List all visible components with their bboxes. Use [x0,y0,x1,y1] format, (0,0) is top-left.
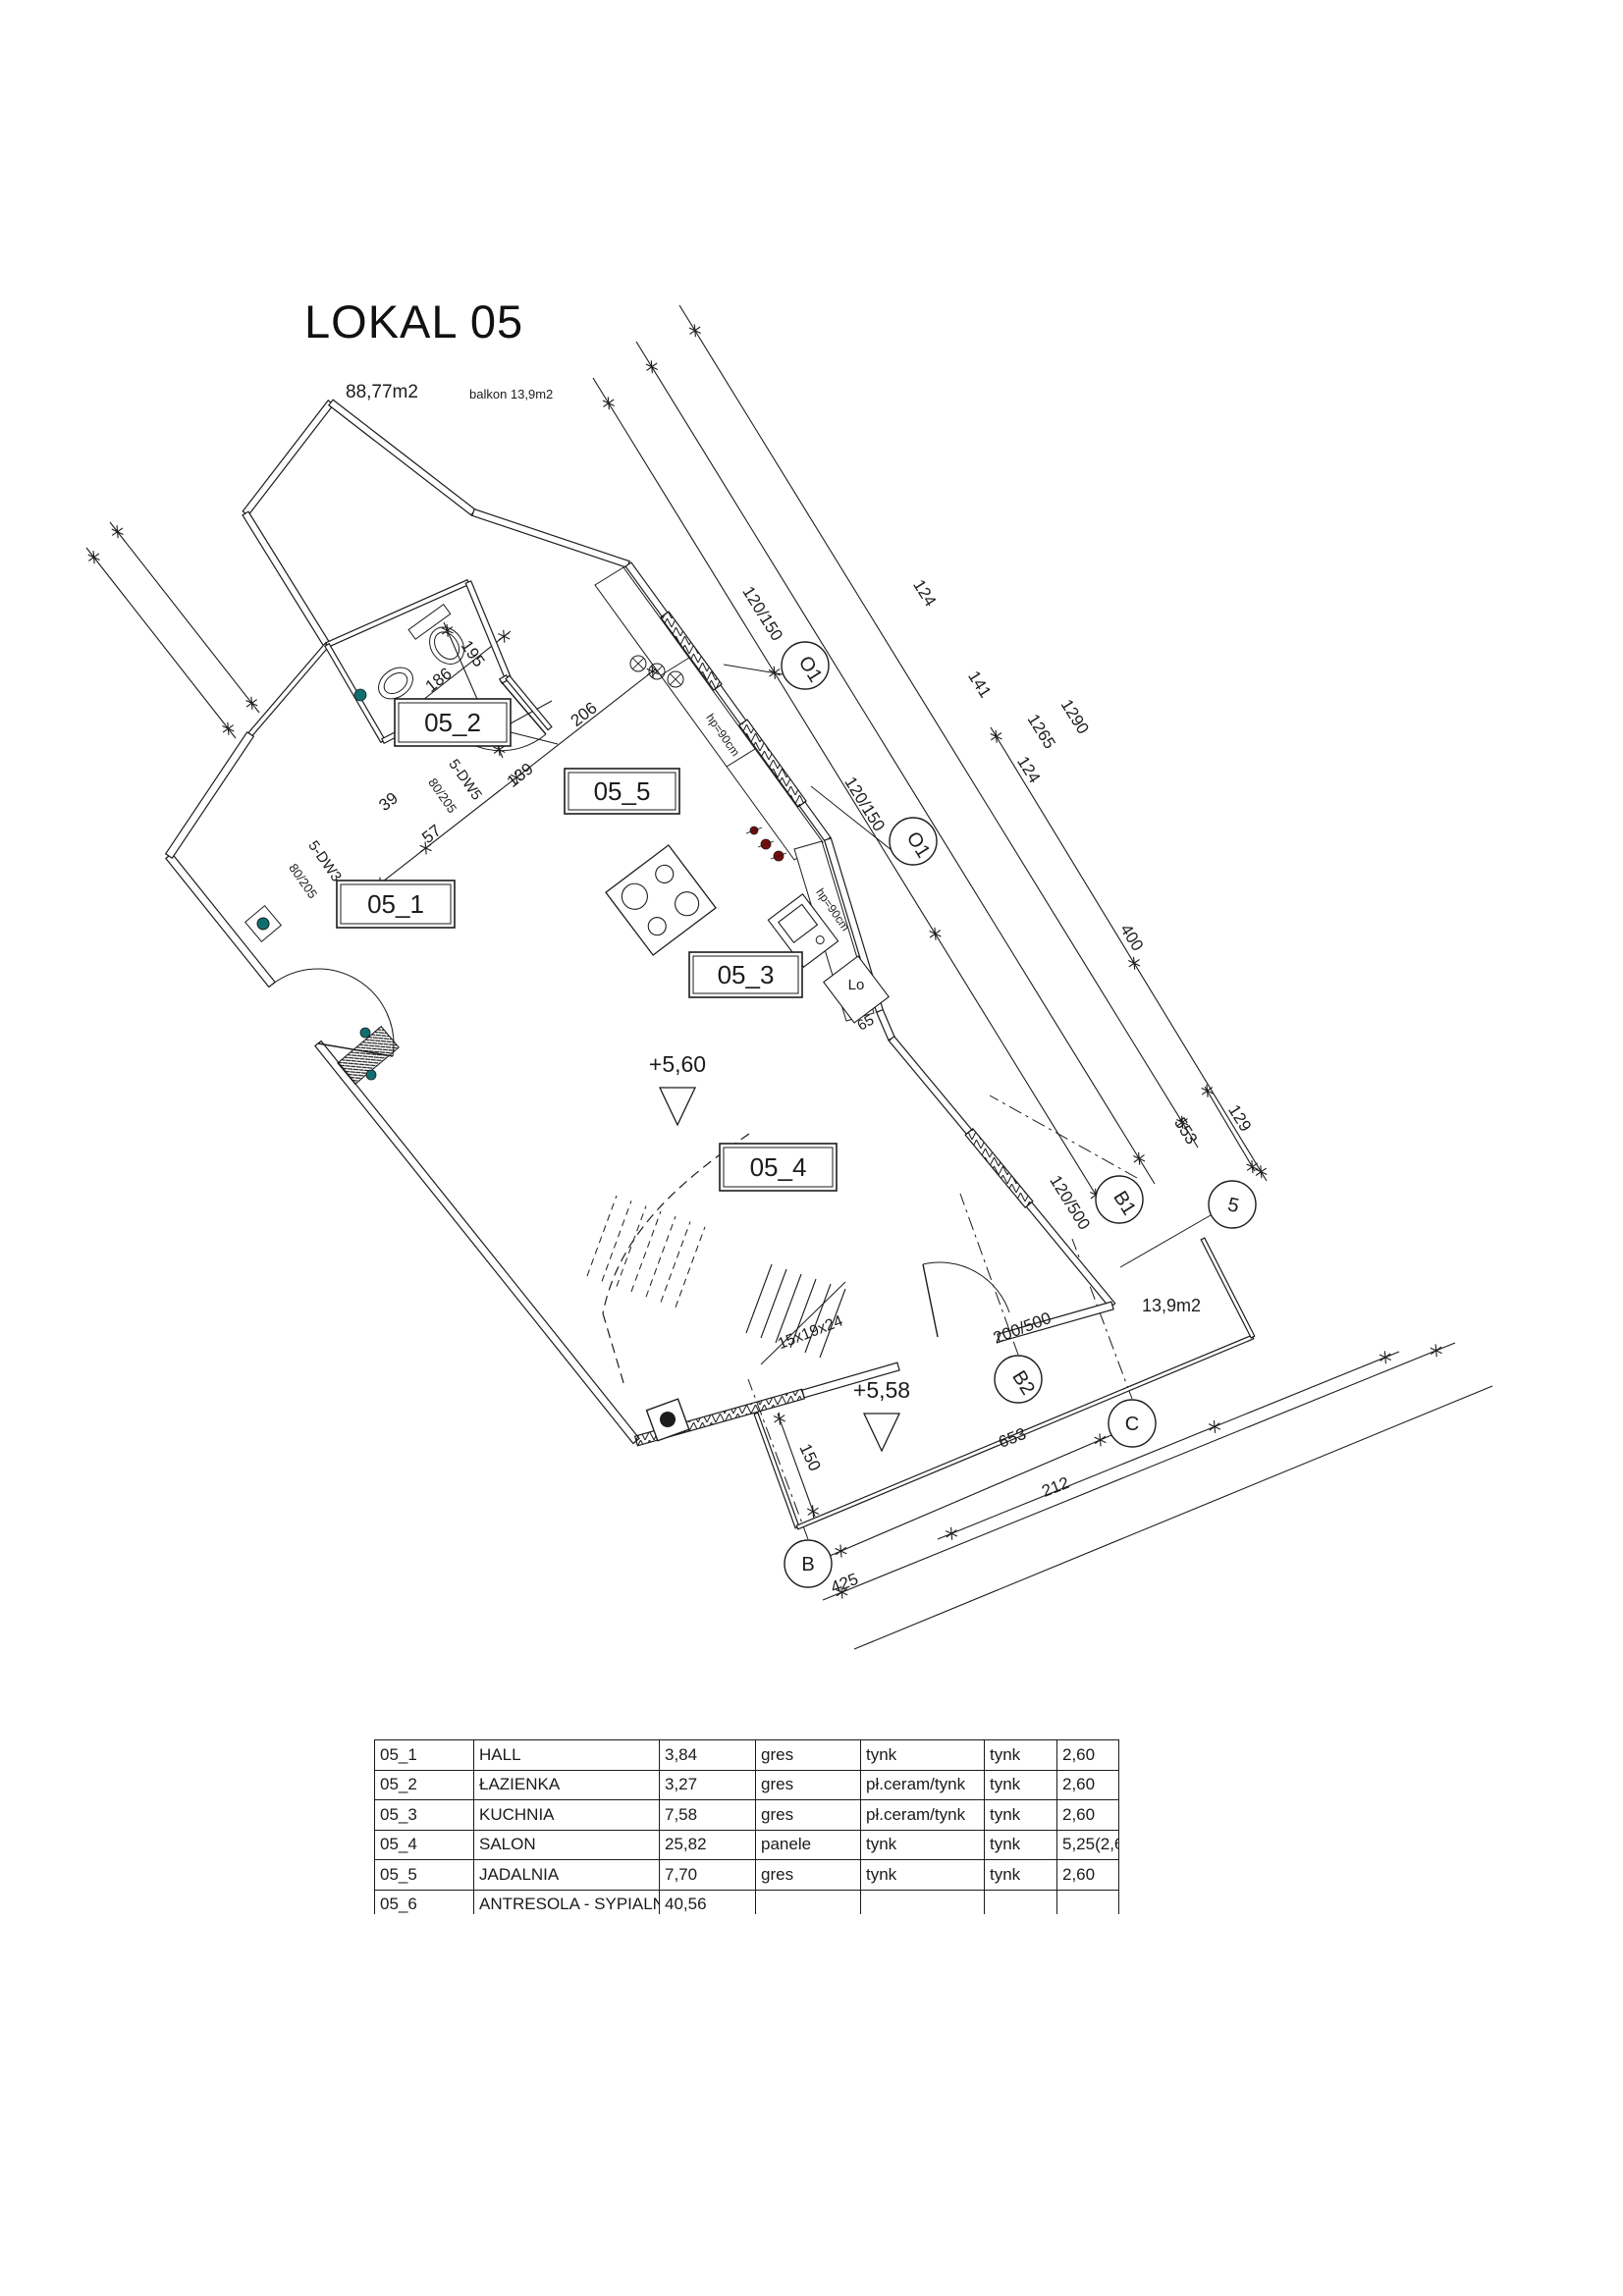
plan-label-w1b: 120/150 [840,774,889,834]
plan-label-st: 15x19x24 [776,1312,845,1353]
wall [329,400,475,515]
door-swing-arc [923,1262,1009,1312]
table-cell: 2,60 [1057,1770,1119,1800]
level-marker-triangle [660,1088,695,1125]
plan-label-r052: 05_2 [424,708,481,737]
plan-label-d553: 553 [1170,1114,1201,1148]
table-cell [861,1890,985,1914]
stair-tread-dashed [617,1206,646,1287]
door-leaf [923,1264,938,1337]
table-cell: JADALNIA [474,1860,660,1891]
table-cell: 05_1 [375,1740,474,1771]
table-cell: tynk [861,1740,985,1771]
wall [243,400,334,515]
plan-label-r053: 05_3 [718,960,775,989]
finish-table-wrap: 05_1HALL3,84grestynktynk2,6005_2ŁAZIENKA… [374,1739,1120,1914]
entry-lamp [245,906,282,942]
plan-label-d400: 400 [1116,921,1147,954]
plan-label-d39: 39 [375,788,402,815]
table-row: 05_6ANTRESOLA - SYPIALNIA40,56 [375,1890,1119,1914]
plan-label-d1290: 1290 [1057,696,1093,737]
table-cell: gres [756,1860,861,1891]
plan-label-d195: 195 [458,637,489,670]
dimension-line [854,1386,1492,1649]
plan-label-c: C [1125,1414,1139,1435]
table-cell: tynk [985,1740,1057,1771]
plan-label-d425: 425 [828,1570,860,1597]
table-row: 05_3KUCHNIA7,58grespł.ceram/tynktynk2,60 [375,1800,1119,1831]
plan-label-w1a: 120/150 [738,583,786,644]
plan-label-d150: 150 [795,1441,824,1474]
plan-label-dw5s: 80/205 [425,775,460,816]
leader-line [1120,1215,1211,1267]
table-cell: tynk [861,1860,985,1891]
plan-label-ba: 13,9m2 [1142,1296,1201,1315]
plan-label-d141: 141 [964,667,995,701]
plan-label-d206: 206 [568,698,601,729]
floorplan-page: LOKAL 05 88,77m2 balkon 13,9m2 +5,60+5,5… [0,0,1623,2296]
table-cell: gres [756,1740,861,1771]
table-cell: tynk [985,1770,1057,1800]
dimension-line [823,1343,1455,1600]
kitchen-counter [595,567,823,860]
plan-label-r054: 05_4 [750,1152,807,1182]
table-cell: tynk [861,1830,985,1860]
plan-label-d124b: 124 [1013,753,1044,786]
stair-tread-dashed [661,1222,690,1303]
table-cell: KUCHNIA [474,1800,660,1831]
washbasin-bowl [380,668,411,698]
switch-icon [366,1070,376,1080]
stair-tread-dashed [676,1227,705,1308]
dimension-line [636,342,1155,1184]
table-cell: gres [756,1800,861,1831]
table-cell [756,1890,861,1914]
table-row: 05_4SALON25,82paneletynktynk5,25(2,60) [375,1830,1119,1860]
table-cell: 7,58 [660,1800,756,1831]
wall [166,732,254,858]
table-cell: pł.ceram/tynk [861,1800,985,1831]
plan-label-r055: 05_5 [594,776,651,806]
wall [243,511,330,647]
table-cell: tynk [985,1860,1057,1891]
table-cell: 3,84 [660,1740,756,1771]
plan-label-d653: 653 [996,1424,1028,1452]
wall [472,509,629,568]
table-cell: 05_5 [375,1860,474,1891]
axis-line [990,1095,1137,1178]
plan-label-d57: 57 [418,821,445,847]
wall [315,1041,639,1444]
plan-label-wb1: 120/500 [1046,1172,1094,1233]
table-cell: 05_2 [375,1770,474,1800]
mezzanine-dashed-edge [603,1313,624,1386]
switch-icon [354,689,366,701]
table-cell: 2,60 [1057,1740,1119,1771]
balcony-edge [1201,1238,1255,1338]
table-cell [1057,1890,1119,1914]
wall [248,643,329,735]
plan-label-d139: 139 [504,759,537,790]
floorplan-drawing: +5,60+5,5805_205_505_105_305_4O1O1B15B2C… [0,0,1623,2296]
table-cell: 05_3 [375,1800,474,1831]
plan-label-d212: 212 [1039,1473,1071,1501]
stair-tread-dashed [587,1196,617,1276]
plan-label-lo: Lo [848,977,865,993]
toilet-icon [408,605,476,674]
stove-icon [606,845,716,955]
table-cell [985,1890,1057,1914]
plan-label-lv1: +5,60 [649,1051,706,1077]
table-cell: ŁAZIENKA [474,1770,660,1800]
plan-label-wb2: 200/500 [991,1308,1054,1348]
table-cell: 3,27 [660,1770,756,1800]
table-cell: SALON [474,1830,660,1860]
plan-label-d129: 129 [1224,1101,1255,1135]
table-cell: pł.ceram/tynk [861,1770,985,1800]
plan-label-b: B [801,1554,814,1575]
dimension-line [679,305,1198,1148]
table-cell: 2,60 [1057,1800,1119,1831]
table-cell: 40,56 [660,1890,756,1914]
dimension-line [86,548,236,738]
table-cell: panele [756,1830,861,1860]
table-cell: 2,60 [1057,1860,1119,1891]
dimension-line [110,522,259,713]
wall [889,1037,971,1134]
table-cell: HALL [474,1740,660,1771]
table-cell: tynk [985,1830,1057,1860]
wall [877,1010,894,1041]
plan-label-lv2: +5,58 [853,1377,910,1403]
table-cell: tynk [985,1800,1057,1831]
stair-tread-dashed [631,1211,661,1292]
plan-label-d1265: 1265 [1024,711,1059,752]
finish-table: 05_1HALL3,84grestynktynk2,6005_2ŁAZIENKA… [374,1739,1119,1914]
window-band [965,1129,1033,1207]
table-cell: 05_6 [375,1890,474,1914]
toilet-tank [408,605,451,640]
plan-label-r051: 05_1 [367,889,424,919]
table-row: 05_5JADALNIA7,70grestynktynk2,60 [375,1860,1119,1891]
table-cell: 25,82 [660,1830,756,1860]
plan-label-dw3s: 80/205 [286,861,320,901]
switch-icon [360,1028,370,1038]
table-cell: 5,25(2,60) [1057,1830,1119,1860]
table-cell: 05_4 [375,1830,474,1860]
stair-tread-dashed [646,1216,676,1297]
table-cell: 7,70 [660,1860,756,1891]
table-row: 05_1HALL3,84grestynktynk2,60 [375,1740,1119,1771]
plan-label-d124a: 124 [909,576,940,610]
balcony-edge [754,1413,799,1527]
table-row: 05_2ŁAZIENKA3,27grespł.ceram/tynktynk2,6… [375,1770,1119,1800]
stair-tread [746,1264,772,1333]
dimension-line [991,727,1267,1181]
plan-label-d186: 186 [422,664,456,695]
level-marker-triangle [864,1414,899,1451]
table-cell: ANTRESOLA - SYPIALNIA [474,1890,660,1914]
table-cell: gres [756,1770,861,1800]
stair-tread [761,1269,786,1338]
